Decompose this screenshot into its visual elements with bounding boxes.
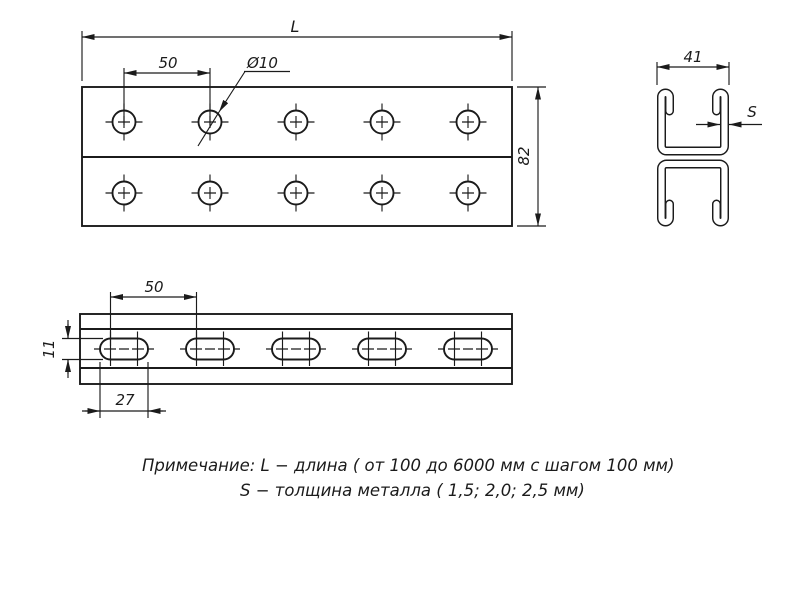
note-line-1: Примечание: L − длина ( от 100 до 6000 м… bbox=[142, 456, 674, 475]
section-view bbox=[662, 93, 725, 222]
hole-marker bbox=[192, 175, 229, 212]
hole-marker bbox=[450, 104, 487, 141]
hole-marker bbox=[278, 175, 315, 212]
slot-pitch-dimension-label: 50 bbox=[144, 278, 163, 296]
side-view-dimensions: 50 11 27 bbox=[40, 278, 197, 418]
hole-marker bbox=[450, 175, 487, 212]
slot-length-extension-lines bbox=[100, 362, 148, 418]
slot-marker bbox=[352, 332, 412, 367]
slot-length-dimension-label: 27 bbox=[115, 391, 135, 409]
hole-marker bbox=[364, 175, 401, 212]
section-upper-channel-inner bbox=[662, 93, 725, 151]
slot-marker bbox=[180, 332, 240, 367]
hole-marker bbox=[278, 104, 315, 141]
thickness-label: S bbox=[747, 103, 757, 121]
profile-height-dimension-label: 82 bbox=[515, 146, 533, 165]
hole-marker bbox=[364, 104, 401, 141]
hole-diameter-label: Ø10 bbox=[246, 54, 278, 72]
top-view bbox=[82, 87, 512, 226]
side-view bbox=[80, 314, 512, 384]
hole-diameter-leader-arrow bbox=[219, 72, 245, 113]
hole-marker bbox=[106, 175, 143, 212]
section-width-dimension-label: 41 bbox=[683, 48, 702, 66]
technical-drawing-canvas: L 50 Ø10 82 41 S bbox=[0, 0, 800, 600]
slot-marker bbox=[266, 332, 326, 367]
note-line-2: S − толщина металла ( 1,5; 2,0; 2,5 мм) bbox=[240, 481, 585, 500]
slot-marker bbox=[438, 332, 498, 367]
hole-pitch-extension-lines bbox=[124, 68, 210, 125]
drawing-sheet: L 50 Ø10 82 41 S bbox=[0, 0, 800, 600]
hole-pitch-dimension-label: 50 bbox=[158, 54, 177, 72]
drawing-note: Примечание: L − длина ( от 100 до 6000 м… bbox=[142, 456, 674, 500]
length-dimension-label: L bbox=[291, 17, 300, 36]
slot-height-dimension-label: 11 bbox=[40, 339, 58, 358]
section-lower-channel-inner bbox=[662, 164, 725, 222]
slot-marker bbox=[94, 332, 154, 367]
